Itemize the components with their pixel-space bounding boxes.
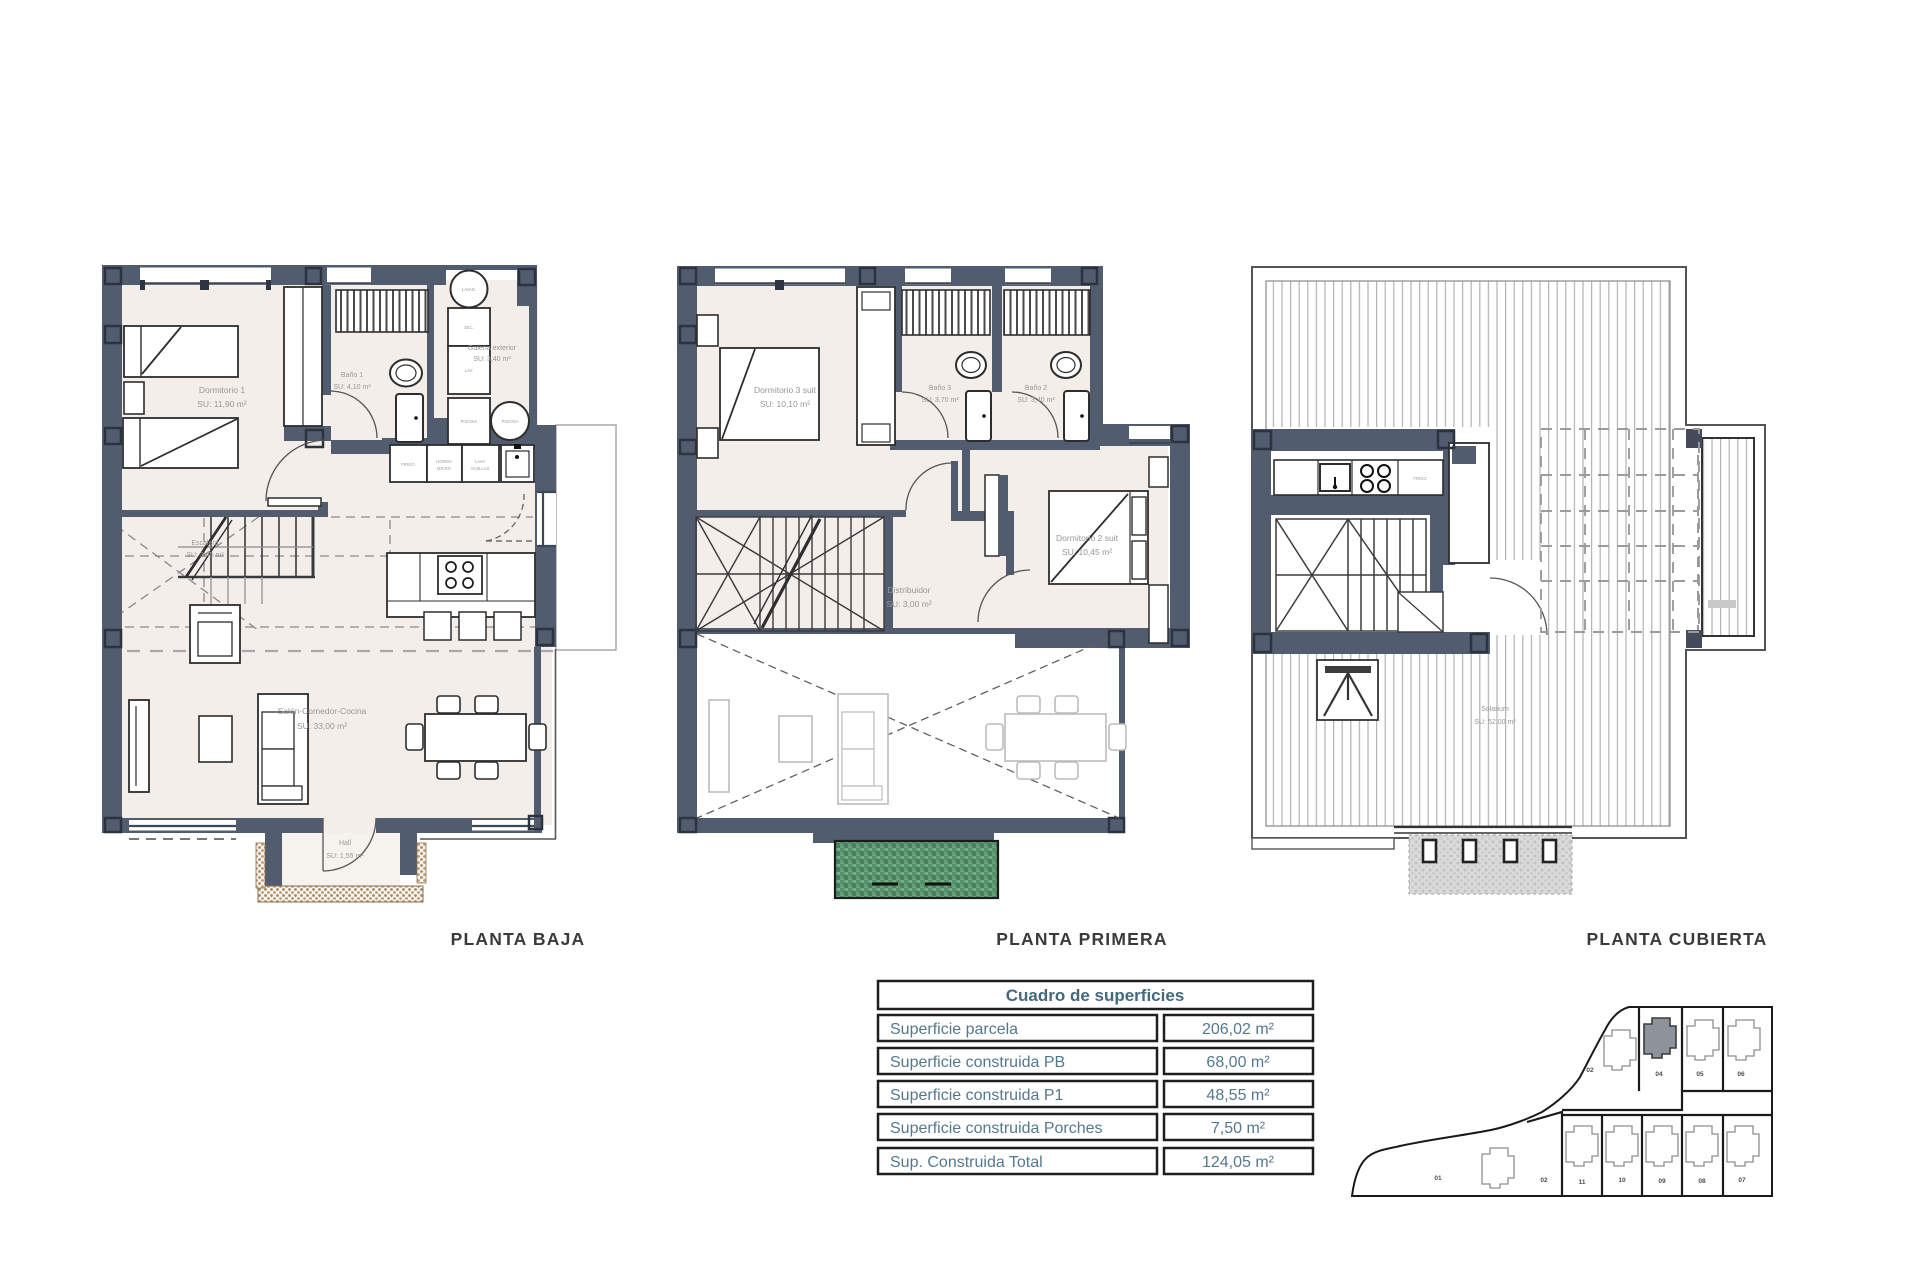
svg-text:48,55 m²: 48,55 m² — [1206, 1087, 1270, 1104]
svg-text:09: 09 — [1658, 1178, 1666, 1185]
svg-text:Cuadro de superficies: Cuadro de superficies — [1006, 986, 1185, 1005]
svg-text:PISCINA: PISCINA — [502, 419, 519, 424]
svg-text:PLANTA PRIMERA: PLANTA PRIMERA — [996, 929, 1167, 949]
svg-text:FRIGO: FRIGO — [401, 462, 415, 467]
svg-text:SU: 52,00 m²: SU: 52,00 m² — [1474, 719, 1516, 726]
svg-text:Dormitorio 3 suit: Dormitorio 3 suit — [754, 385, 817, 395]
svg-text:68,00 m²: 68,00 m² — [1206, 1054, 1270, 1071]
svg-text:HORNO: HORNO — [436, 459, 452, 464]
svg-text:124,05 m²: 124,05 m² — [1202, 1154, 1275, 1171]
svg-text:PISCINA: PISCINA — [461, 419, 478, 424]
svg-text:04: 04 — [1655, 1071, 1663, 1078]
svg-text:Escalera: Escalera — [191, 540, 218, 547]
svg-text:SU: 11,90 m²: SU: 11,90 m² — [197, 399, 247, 409]
svg-text:SU: 3,00 m²: SU: 3,00 m² — [886, 599, 932, 609]
svg-text:LAVA: LAVA — [475, 459, 485, 464]
svg-text:02: 02 — [1540, 1177, 1548, 1184]
svg-text:Hall: Hall — [339, 840, 352, 847]
svg-text:SU: 10,10 m²: SU: 10,10 m² — [760, 399, 810, 409]
svg-text:MICRO: MICRO — [437, 466, 452, 471]
svg-text:Superficie parcela: Superficie parcela — [890, 1021, 1018, 1038]
svg-text:SU: 10,45 m²: SU: 10,45 m² — [1062, 547, 1112, 557]
svg-text:08: 08 — [1698, 1178, 1706, 1185]
svg-text:PLANTA CUBIERTA: PLANTA CUBIERTA — [1587, 929, 1768, 949]
svg-text:VAJILLAS: VAJILLAS — [471, 466, 490, 471]
svg-text:SU: 3,70 m²: SU: 3,70 m² — [921, 397, 959, 404]
svg-text:Superficie construida Porches: Superficie construida Porches — [890, 1120, 1103, 1137]
svg-text:SEC.: SEC. — [464, 325, 474, 330]
svg-text:Dormitorio 1: Dormitorio 1 — [199, 385, 246, 395]
svg-text:01: 01 — [1434, 1175, 1442, 1182]
svg-text:SU: 3,45 m²: SU: 3,45 m² — [186, 552, 224, 559]
svg-text:11: 11 — [1579, 1179, 1586, 1186]
svg-text:206,02 m²: 206,02 m² — [1202, 1021, 1275, 1038]
svg-text:Galería exterior: Galería exterior — [468, 345, 517, 352]
svg-text:05: 05 — [1696, 1071, 1704, 1078]
svg-text:02: 02 — [1586, 1067, 1594, 1074]
svg-text:SU: 3,40 m²: SU: 3,40 m² — [1017, 397, 1055, 404]
svg-text:07: 07 — [1738, 1177, 1746, 1184]
svg-text:SU: 4,10 m²: SU: 4,10 m² — [333, 384, 371, 391]
svg-text:Solarium: Solarium — [1481, 706, 1509, 713]
svg-text:SU: 1,55 m²: SU: 1,55 m² — [326, 853, 364, 860]
svg-text:7,50 m²: 7,50 m² — [1211, 1120, 1266, 1137]
svg-text:Sup. Construida Total: Sup. Construida Total — [890, 1154, 1043, 1171]
svg-text:10: 10 — [1618, 1177, 1626, 1184]
svg-text:Salón-Comedor-Cocina: Salón-Comedor-Cocina — [278, 706, 367, 716]
svg-text:Dormitorio 2 suit: Dormitorio 2 suit — [1056, 533, 1119, 543]
svg-text:Superficie construida P1: Superficie construida P1 — [890, 1087, 1064, 1104]
svg-text:LAVAD.: LAVAD. — [462, 287, 476, 292]
svg-text:Distribuidor: Distribuidor — [888, 585, 931, 595]
svg-text:LAV.: LAV. — [465, 368, 473, 373]
svg-text:Superficie construida PB: Superficie construida PB — [890, 1054, 1065, 1071]
svg-text:Baño 2: Baño 2 — [1025, 385, 1047, 392]
svg-text:PLANTA BAJA: PLANTA BAJA — [451, 929, 586, 949]
svg-text:SU: 33,00 m²: SU: 33,00 m² — [297, 721, 347, 731]
svg-text:FRIGO: FRIGO — [1413, 476, 1427, 481]
svg-text:Baño 1: Baño 1 — [341, 372, 363, 379]
svg-text:SU: 3,40 m²: SU: 3,40 m² — [473, 356, 511, 363]
svg-text:Baño 3: Baño 3 — [929, 385, 951, 392]
svg-text:06: 06 — [1737, 1071, 1745, 1078]
